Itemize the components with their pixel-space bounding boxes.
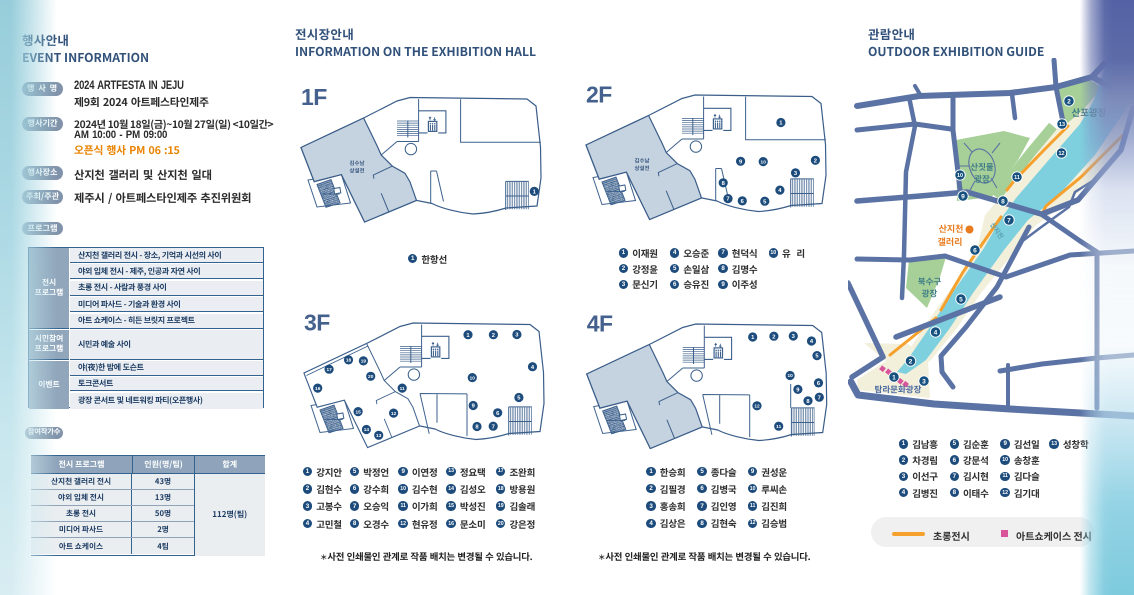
svg-text:12: 12: [391, 411, 397, 417]
svg-text:13: 13: [1059, 122, 1065, 128]
svg-text:13: 13: [376, 433, 382, 439]
svg-text:12: 12: [754, 404, 760, 410]
svg-text:3F: 3F: [304, 310, 330, 336]
svg-text:7: 7: [726, 197, 729, 203]
svg-text:16: 16: [315, 386, 321, 392]
svg-text:산지천: 산지천: [939, 222, 964, 235]
svg-text:상설전: 상설전: [350, 167, 365, 175]
svg-text:9: 9: [961, 193, 965, 200]
svg-text:11: 11: [400, 386, 405, 392]
svg-text:4: 4: [934, 329, 938, 336]
svg-text:17: 17: [326, 367, 332, 373]
svg-text:4F: 4F: [587, 311, 613, 337]
svg-text:광장: 광장: [974, 173, 990, 185]
svg-text:8: 8: [1001, 198, 1005, 205]
svg-text:2F: 2F: [586, 82, 612, 108]
svg-text:2: 2: [772, 334, 775, 340]
svg-text:14: 14: [364, 427, 370, 433]
svg-text:3: 3: [922, 378, 926, 385]
svg-text:10: 10: [957, 173, 963, 179]
svg-text:18: 18: [346, 358, 352, 364]
svg-text:19: 19: [361, 359, 367, 365]
svg-text:10: 10: [761, 159, 767, 165]
svg-text:10: 10: [787, 373, 793, 379]
svg-text:7: 7: [1007, 217, 1011, 224]
svg-text:상설전: 상설전: [635, 164, 650, 172]
svg-text:2: 2: [1067, 98, 1071, 105]
svg-text:5: 5: [959, 296, 963, 303]
svg-text:1F: 1F: [301, 84, 327, 110]
svg-text:2: 2: [492, 333, 495, 339]
svg-text:20: 20: [368, 374, 374, 380]
svg-text:6: 6: [973, 247, 977, 254]
svg-text:15: 15: [355, 409, 361, 415]
svg-text:10: 10: [470, 375, 476, 381]
svg-text:산짓물: 산짓물: [970, 161, 994, 173]
svg-text:2: 2: [909, 358, 913, 365]
svg-text:12: 12: [1058, 151, 1064, 157]
svg-text:7: 7: [492, 424, 495, 430]
svg-text:북수구: 북수구: [918, 276, 942, 288]
svg-text:탐라문화광장: 탐라문화광장: [875, 384, 922, 396]
svg-text:11: 11: [1014, 175, 1020, 181]
svg-text:광장: 광장: [922, 288, 938, 300]
svg-text:갤러리: 갤러리: [938, 235, 963, 248]
svg-text:2: 2: [814, 158, 817, 164]
svg-text:1: 1: [892, 374, 896, 381]
svg-text:7: 7: [818, 395, 821, 401]
svg-text:11: 11: [776, 424, 781, 430]
